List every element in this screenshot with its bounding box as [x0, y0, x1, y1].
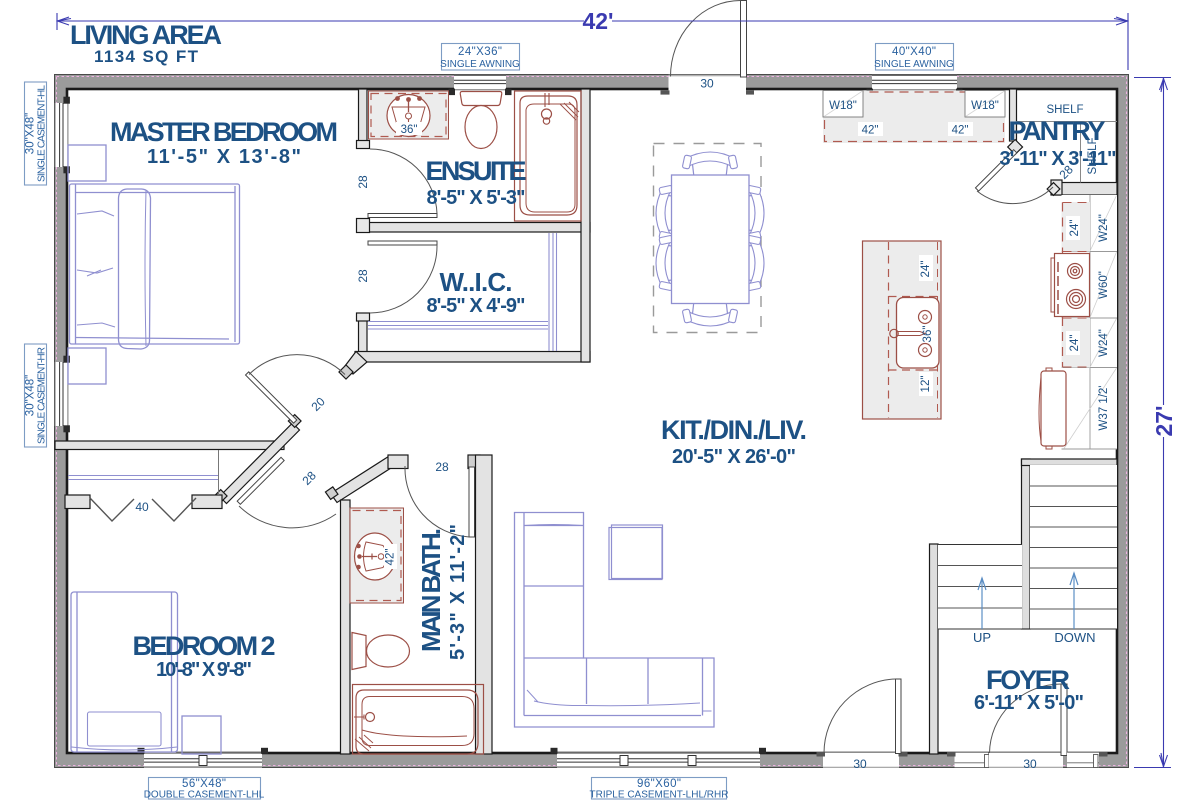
svg-text:W60": W60": [1098, 271, 1110, 299]
svg-text:30: 30: [1023, 757, 1037, 771]
svg-text:3'-11" X 3'-11": 3'-11" X 3'-11": [1000, 148, 1117, 170]
svg-text:8'-5" X 4'-9": 8'-5" X 4'-9": [427, 295, 526, 317]
svg-text:SINGLE CASEMENT-HL: SINGLE CASEMENT-HL: [37, 85, 48, 182]
svg-text:W18": W18": [971, 100, 999, 112]
svg-text:12": 12": [920, 376, 932, 393]
svg-text:24": 24": [1069, 335, 1081, 352]
svg-text:5'-3" X 11'-2": 5'-3" X 11'-2": [447, 524, 469, 660]
svg-text:40: 40: [135, 500, 149, 514]
svg-text:PANTRY: PANTRY: [1009, 116, 1106, 146]
svg-text:W37 1/2': W37 1/2': [1098, 385, 1110, 430]
svg-text:ENSUITE: ENSUITE: [426, 156, 527, 186]
svg-text:24": 24": [1069, 220, 1081, 237]
svg-text:MAIN BATH.: MAIN BATH.: [416, 528, 446, 652]
svg-text:DOUBLE CASEMENT-LHL: DOUBLE CASEMENT-LHL: [144, 790, 265, 800]
svg-text:W18": W18": [829, 100, 857, 112]
svg-text:W24": W24": [1098, 329, 1110, 357]
svg-text:W..I.C.: W..I.C.: [440, 267, 513, 297]
svg-text:30"X48": 30"X48": [25, 375, 37, 416]
svg-text:SHELF: SHELF: [1046, 104, 1083, 116]
svg-text:UP: UP: [973, 630, 991, 645]
svg-text:42": 42": [385, 549, 397, 566]
svg-text:24"X36": 24"X36": [458, 46, 502, 58]
svg-text:6'-11" X 5'-0": 6'-11" X 5'-0": [974, 692, 1084, 714]
svg-text:28: 28: [356, 269, 370, 283]
svg-text:DOWN: DOWN: [1054, 630, 1095, 645]
svg-text:8'-5" X 5'-3": 8'-5" X 5'-3": [427, 187, 526, 209]
svg-text:TRIPLE CASEMENT-LHL/RHR: TRIPLE CASEMENT-LHL/RHR: [590, 790, 729, 800]
svg-text:42": 42": [952, 125, 969, 137]
svg-text:SINGLE AWNING: SINGLE AWNING: [440, 59, 520, 70]
svg-text:MASTER BEDROOM: MASTER BEDROOM: [110, 117, 338, 147]
svg-text:36": 36": [922, 326, 934, 343]
svg-text:30: 30: [700, 77, 714, 91]
svg-text:42': 42': [582, 8, 613, 34]
svg-text:FOYER: FOYER: [986, 665, 1070, 695]
svg-text:W24": W24": [1098, 214, 1110, 242]
svg-text:36": 36": [401, 124, 418, 136]
svg-text:LIVING AREA: LIVING AREA: [70, 20, 222, 50]
svg-text:28: 28: [435, 460, 449, 474]
svg-text:40"X40": 40"X40": [892, 46, 936, 58]
svg-text:27': 27': [1151, 405, 1177, 436]
svg-text:SINGLE AWNING: SINGLE AWNING: [874, 59, 954, 70]
svg-text:56"X48": 56"X48": [182, 778, 226, 790]
svg-text:1134 SQ FT: 1134 SQ FT: [94, 47, 199, 66]
svg-text:96"X60": 96"X60": [637, 778, 681, 790]
svg-text:20'-5" X 26'-0": 20'-5" X 26'-0": [672, 446, 796, 468]
svg-text:42": 42": [862, 125, 879, 137]
svg-text:24": 24": [920, 261, 932, 278]
svg-text:10'-8" X 9'-8": 10'-8" X 9'-8": [156, 659, 252, 681]
svg-text:SINGLE CASEMENT-HR: SINGLE CASEMENT-HR: [37, 347, 48, 444]
svg-text:28: 28: [356, 175, 370, 189]
svg-text:30"X48": 30"X48": [25, 113, 37, 154]
svg-text:30: 30: [853, 757, 867, 771]
svg-text:BEDROOM 2: BEDROOM 2: [133, 631, 276, 661]
svg-text:KIT./DIN./LIV.: KIT./DIN./LIV.: [661, 415, 807, 445]
